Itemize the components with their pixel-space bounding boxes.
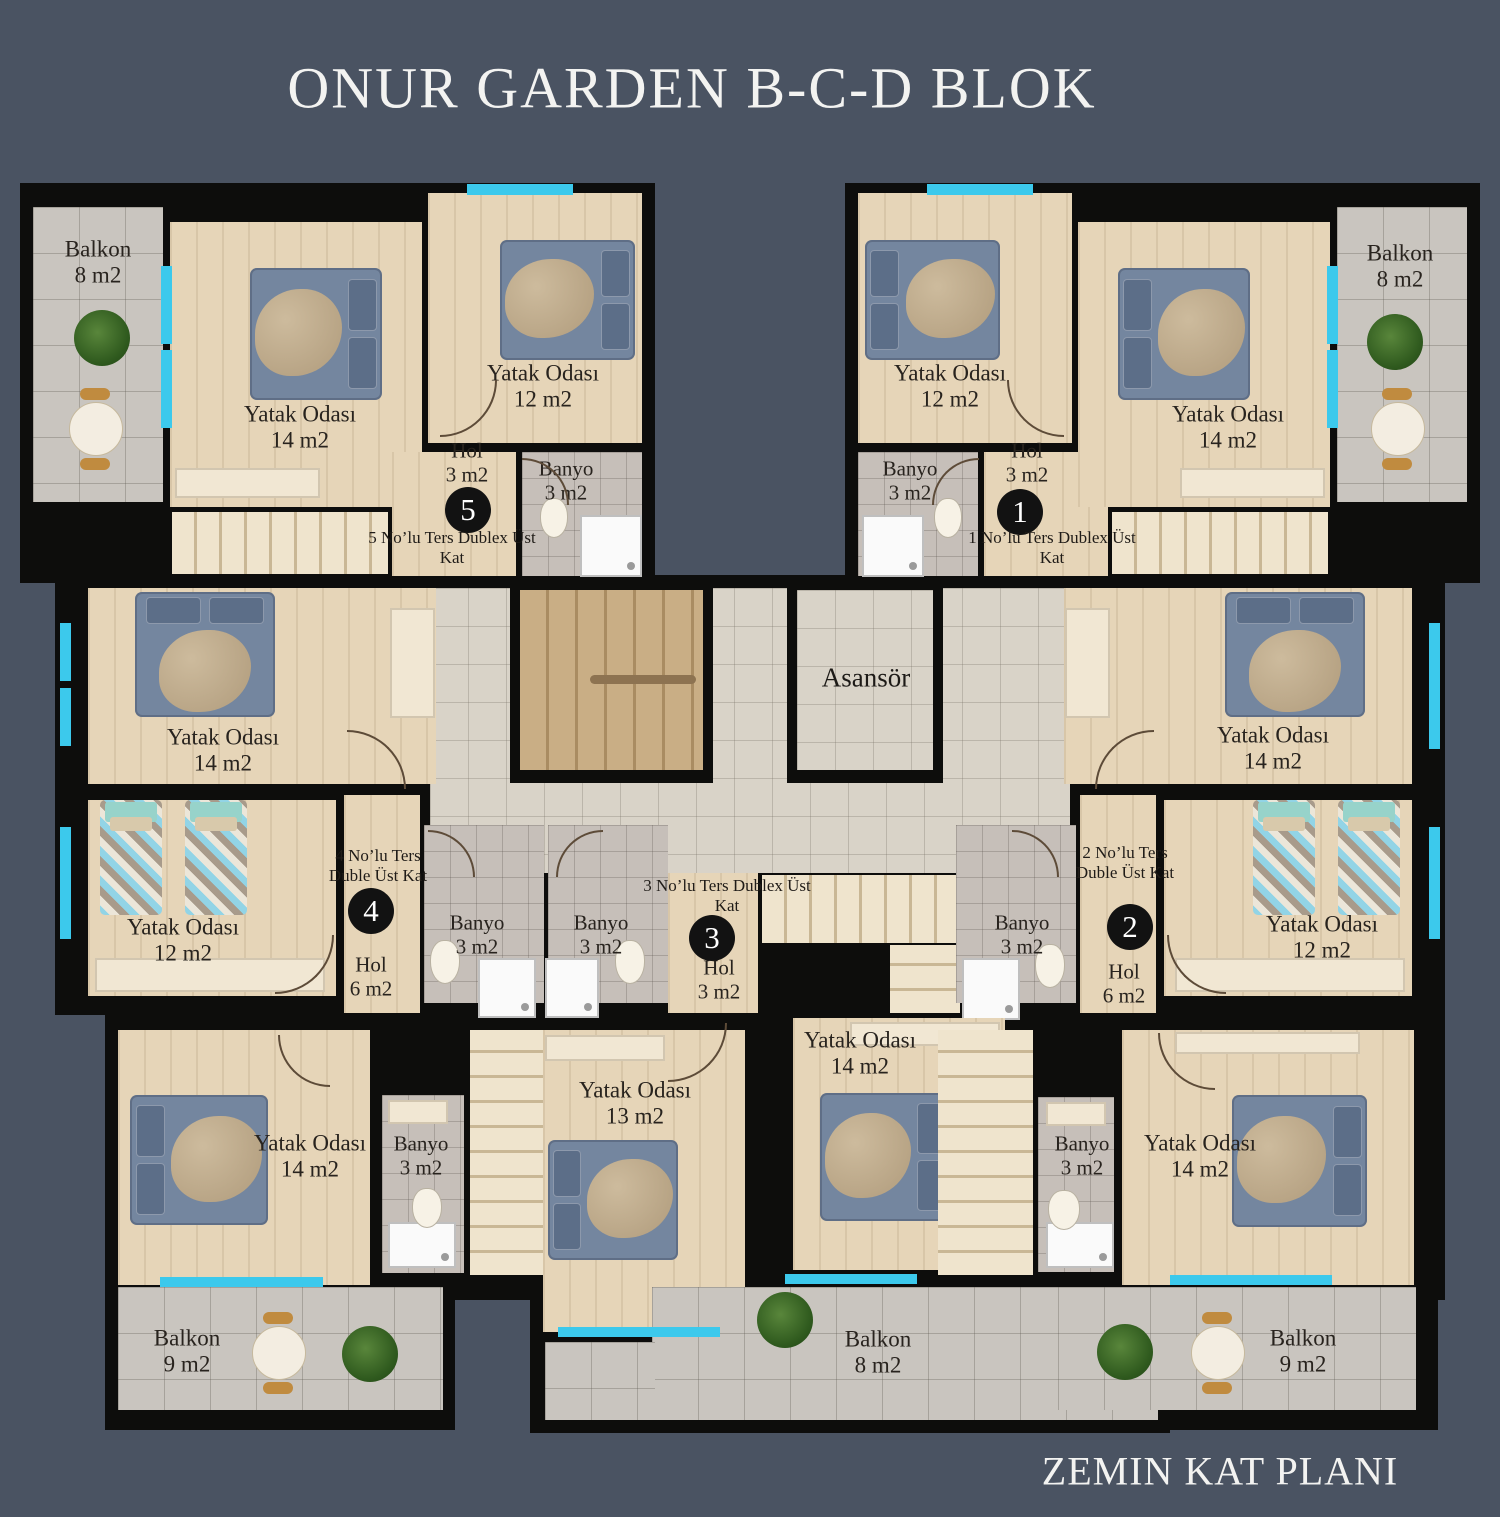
unit-2-badge: 2 <box>1107 904 1153 950</box>
unit-4-badge: 4 <box>348 888 394 934</box>
double-bed <box>865 240 1000 360</box>
window <box>467 184 573 195</box>
single-bed <box>185 800 247 915</box>
wardrobe <box>545 1035 665 1061</box>
window <box>785 1274 917 1284</box>
unit-4-note: 4 No’lu Ters Duble Üst Kat <box>321 846 436 886</box>
stairs-bottom-right <box>938 1030 1033 1275</box>
room-label-hall-unit2: Hol6 m2 <box>1103 960 1146 1007</box>
single-bed <box>100 800 162 915</box>
room-label-bedroom14-mid-left: Yatak Odası14 m2 <box>167 724 279 776</box>
plan-level-label: ZEMIN KAT PLANI <box>1042 1448 1398 1495</box>
shower-tray <box>388 1222 456 1268</box>
room-label-balcony-top-right: Balkon8 m2 <box>1367 240 1433 292</box>
sink <box>1046 1102 1106 1126</box>
room-label-bathroom-unit2-lower: Banyo3 m2 <box>1055 1132 1110 1179</box>
unit-3-badge: 3 <box>689 915 735 961</box>
room-label-bedroom14-bottom-right: Yatak Odası14 m2 <box>1144 1130 1256 1182</box>
window <box>1327 350 1338 428</box>
balcony-table-icon <box>69 402 123 456</box>
balcony-table-icon <box>1191 1326 1245 1380</box>
double-bed <box>1118 268 1250 400</box>
unit-2-note: 2 No’lu Ters Duble Üst Kat <box>1068 843 1183 883</box>
stairs-top-left <box>172 512 388 574</box>
page-title: ONUR GARDEN B-C-D BLOK <box>287 55 1096 122</box>
unit-5-badge: 5 <box>445 487 491 533</box>
room-label-hall-unit4: Hol6 m2 <box>350 953 393 1000</box>
window <box>1170 1275 1332 1285</box>
double-bed <box>500 240 635 360</box>
stairs-unit3-lower <box>890 945 960 1013</box>
room-label-bedroom14-top-right: Yatak Odası14 m2 <box>1172 401 1284 453</box>
room-label-bedroom12-mid-left: Yatak Odası12 m2 <box>127 914 239 966</box>
shower-tray <box>1046 1222 1114 1268</box>
window <box>161 350 172 428</box>
window <box>60 688 71 746</box>
room-label-bedroom12-top-left: Yatak Odası12 m2 <box>487 360 599 412</box>
room-label-bedroom14-bottom-center: Yatak Odası14 m2 <box>804 1027 916 1079</box>
shower-tray <box>545 958 599 1018</box>
room-label-bathroom-unit2: Banyo3 m2 <box>995 911 1050 958</box>
room-label-bathroom-unit4: Banyo3 m2 <box>450 911 505 958</box>
double-bed <box>250 268 382 400</box>
balcony-table-icon <box>252 1326 306 1380</box>
room-label-bedroom12-mid-right: Yatak Odası12 m2 <box>1266 911 1378 963</box>
room-label-bathroom-unit3: Banyo3 m2 <box>574 911 629 958</box>
plant-icon <box>74 310 130 366</box>
double-bed <box>820 1093 950 1221</box>
room-label-bathroom-unit4-lower: Banyo3 m2 <box>394 1132 449 1179</box>
room-label-balcony-bottom-left: Balkon9 m2 <box>154 1325 220 1377</box>
window <box>1429 623 1440 749</box>
double-bed <box>135 592 275 717</box>
wardrobe <box>175 468 320 498</box>
plant-icon <box>342 1326 398 1382</box>
window <box>1327 266 1338 344</box>
room-label-bedroom14-mid-right: Yatak Odası14 m2 <box>1217 722 1329 774</box>
double-bed <box>548 1140 678 1260</box>
window <box>1429 827 1440 939</box>
room-label-bedroom14-top-left: Yatak Odası14 m2 <box>244 401 356 453</box>
window <box>60 827 71 939</box>
double-bed <box>1225 592 1365 717</box>
room-label-hall-unit3: Hol3 m2 <box>698 956 741 1003</box>
wardrobe <box>1180 468 1325 498</box>
window <box>927 184 1033 195</box>
shower-tray <box>962 958 1020 1020</box>
shower-tray <box>478 958 536 1018</box>
plant-icon <box>1097 1324 1153 1380</box>
main-staircase <box>520 590 703 770</box>
single-bed <box>1338 800 1400 915</box>
closet <box>1065 608 1110 718</box>
room-label-bedroom12-top-right: Yatak Odası12 m2 <box>894 360 1006 412</box>
room-label-hall-unit5: Hol3 m2 <box>446 439 489 486</box>
toilet <box>412 1188 442 1228</box>
toilet <box>1048 1190 1080 1230</box>
balcony-table-icon <box>1371 402 1425 456</box>
shower-tray <box>862 515 924 577</box>
window <box>161 266 172 344</box>
window <box>160 1277 323 1287</box>
shower-tray <box>580 515 642 577</box>
room-label-hall-unit1: Hol3 m2 <box>1006 439 1049 486</box>
room-label-bathroom-unit1: Banyo3 m2 <box>883 457 938 504</box>
room-label-balcony-bottom-center: Balkon8 m2 <box>845 1326 911 1378</box>
room-label-bedroom13-bottom-center: Yatak Odası13 m2 <box>579 1077 691 1129</box>
room-label-balcony-top-left: Balkon8 m2 <box>65 236 131 288</box>
single-bed <box>1253 800 1315 915</box>
floor-plan-canvas: ONUR GARDEN B-C-D BLOK ZEMIN KAT PLANI B… <box>0 0 1500 1517</box>
window <box>558 1327 720 1337</box>
room-label-balcony-bottom-right: Balkon9 m2 <box>1270 1325 1336 1377</box>
unit-3-note: 3 No’lu Ters Dublex Üst Kat <box>630 876 825 916</box>
double-bed <box>130 1095 268 1225</box>
elevator-label: Asansör <box>822 663 911 694</box>
unit-1-note: 1 No’lu Ters Dublex Üst Kat <box>960 528 1145 568</box>
room-label-bedroom14-bottom-left: Yatak Odası14 m2 <box>254 1130 366 1182</box>
sink <box>388 1100 448 1124</box>
balcony-bottom-center-floor-left <box>545 1342 655 1420</box>
unit-5-note: 5 No’lu Ters Dublex Üst Kat <box>360 528 545 568</box>
closet <box>390 608 435 718</box>
window <box>60 623 71 681</box>
plant-icon <box>1367 314 1423 370</box>
plant-icon <box>757 1292 813 1348</box>
